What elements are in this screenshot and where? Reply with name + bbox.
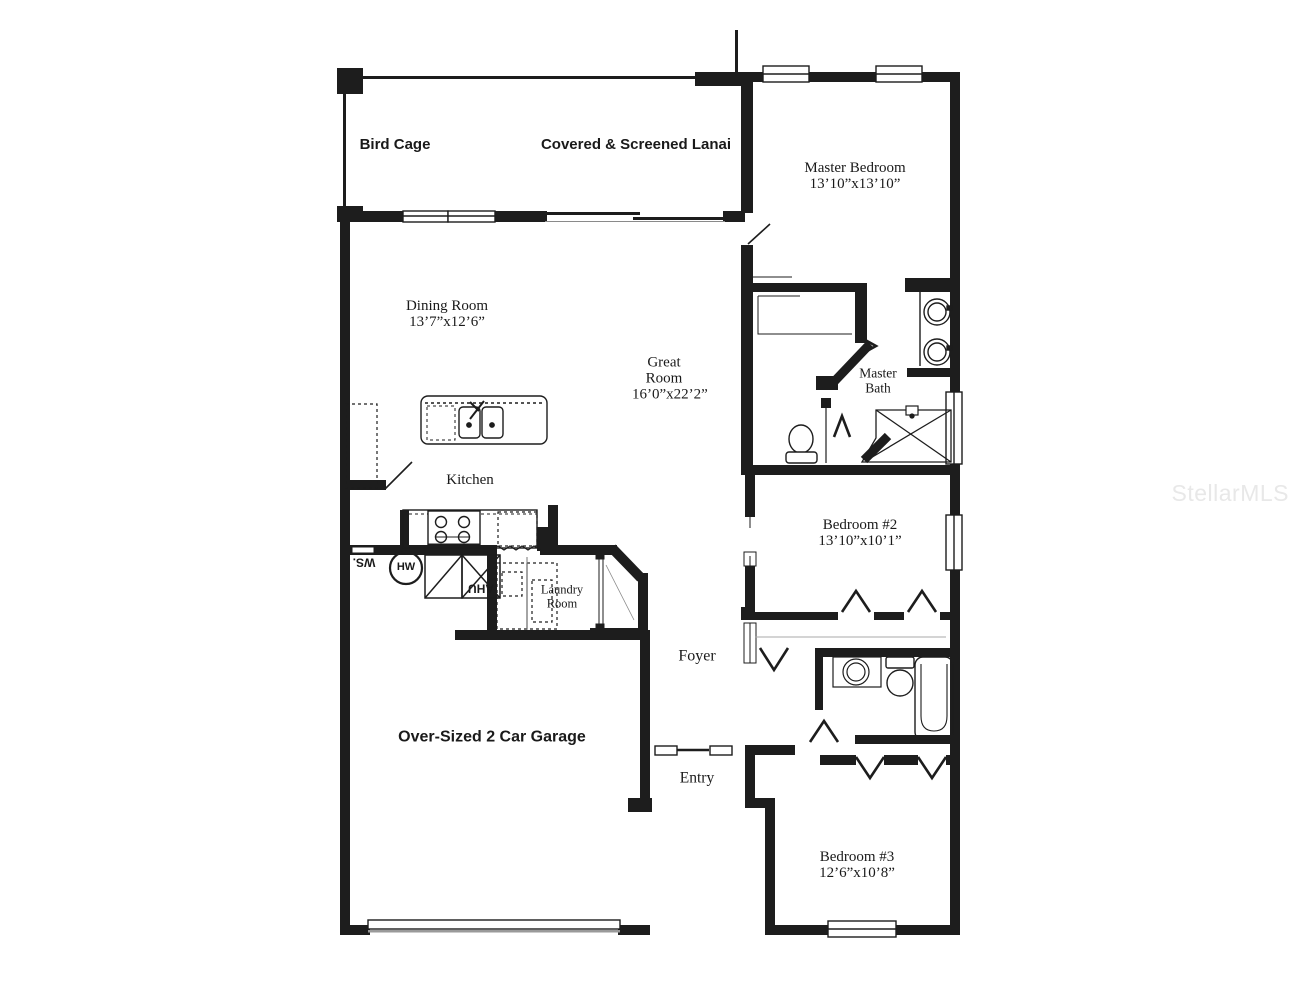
room-label-dining-room: Dining Room13’7”x12’6” (406, 298, 488, 330)
floor-plan: Bird Cage Covered & Screened Lanai Maste… (0, 0, 1291, 984)
water-heater-label: HW (397, 562, 415, 574)
room-label-bird-cage: Bird Cage (360, 137, 431, 153)
room-label-laundry-room: Laundry Room (535, 584, 589, 611)
room-label-great-room: Great Room16’0”x22’2” (632, 355, 696, 404)
door-chevrons (760, 336, 946, 778)
hall-bath-tub (915, 657, 953, 740)
garage-door (368, 920, 620, 933)
master-toilet (786, 402, 826, 463)
room-label-kitchen: Kitchen (446, 472, 493, 488)
island-double-sink (459, 401, 503, 438)
master-vanity-sinks (920, 292, 952, 366)
interior-walls (340, 82, 960, 925)
room-label-master-bath: Master Bath (852, 366, 904, 395)
room-label-entry: Entry (680, 771, 714, 788)
room-label-lanai: Covered & Screened Lanai (541, 137, 731, 153)
room-label-garage: Over-Sized 2 Car Garage (398, 728, 586, 745)
kitchen-island (421, 396, 547, 444)
room-label-bedroom-2: Bedroom #213’10”x10’1” (818, 517, 901, 549)
refrigerator (498, 512, 537, 546)
room-label-bedroom-3: Bedroom #312’6”x10’8” (819, 849, 895, 881)
hall-bath-vanity (833, 657, 881, 687)
stellar-mls-watermark: StellarMLS (1172, 480, 1289, 507)
air-handler-label: AHU (468, 582, 494, 595)
hall-bath-toilet (886, 657, 914, 696)
door-leaves (677, 224, 770, 750)
windows (403, 66, 962, 937)
room-label-master-bedroom: Master Bedroom13’10”x13’10” (804, 160, 905, 192)
room-label-foyer: Foyer (678, 647, 715, 664)
stove (428, 511, 480, 545)
sliding-glass-door (545, 212, 725, 222)
water-softener-label: WS. (353, 556, 376, 569)
